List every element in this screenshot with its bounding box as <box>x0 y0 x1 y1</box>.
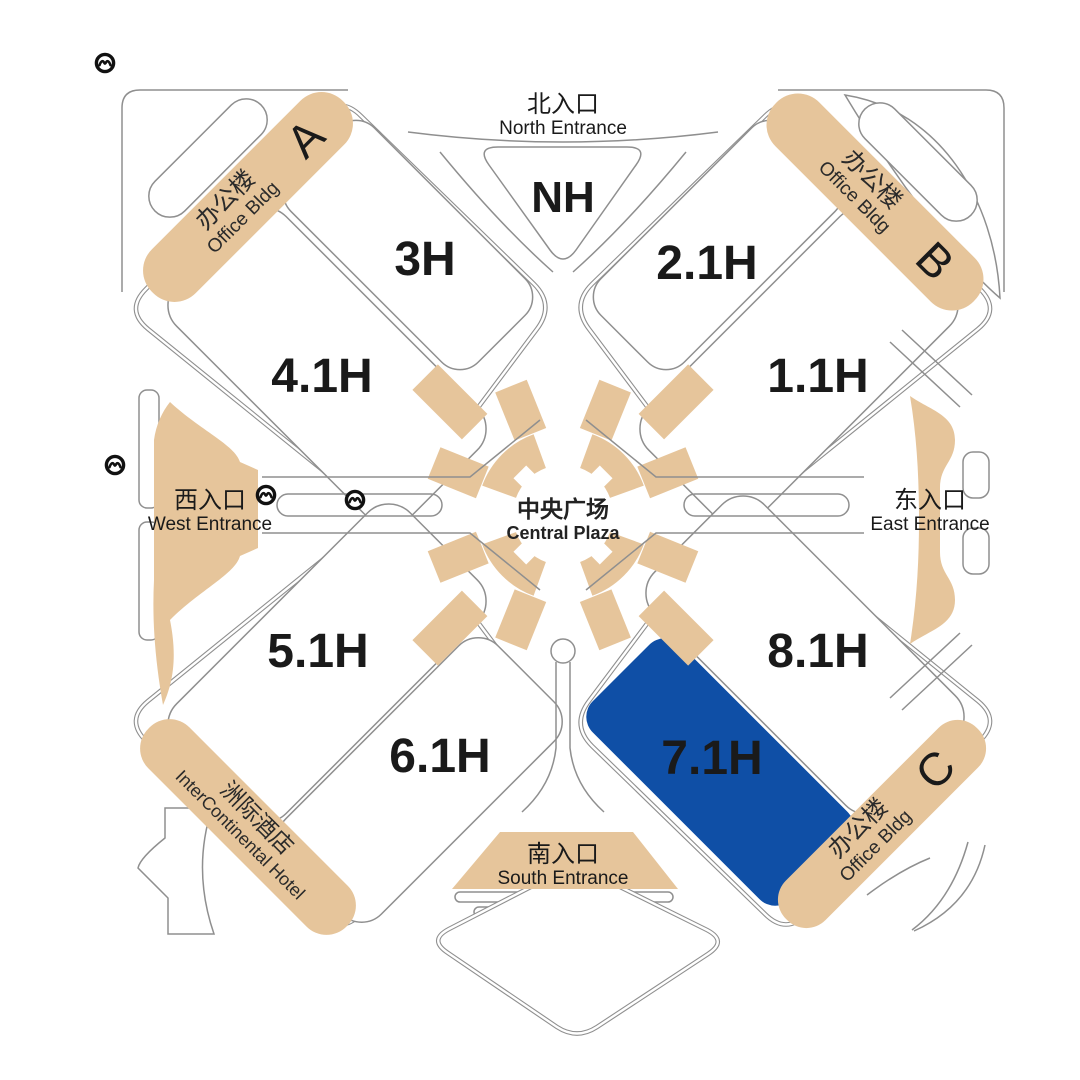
metro-icon <box>346 491 363 508</box>
south-entrance-label-en: South Entrance <box>498 868 629 889</box>
south-entrance-label-zh: 南入口 <box>527 841 599 868</box>
hall-51h-label: 5.1H <box>267 625 368 678</box>
hall-71h-label: 7.1H <box>661 732 762 785</box>
venue-map: 办公楼 Office Bldg A 办公楼 Office Bldg B 洲际酒店… <box>0 0 1080 1080</box>
southwest-corner-arrow <box>138 808 214 934</box>
hall-11h-label: 1.1H <box>767 350 868 403</box>
north-entrance-label-zh: 北入口 <box>527 91 599 118</box>
hall-3h-label: 3H <box>394 233 455 286</box>
south-diamond-building <box>438 870 718 1034</box>
west-entrance-label-en: West Entrance <box>148 514 272 535</box>
hall-41h-label: 4.1H <box>271 350 372 403</box>
metro-icon <box>96 54 113 71</box>
north-entrance-label-en: North Entrance <box>499 118 627 139</box>
west-entrance-label-zh: 西入口 <box>174 487 246 514</box>
east-entrance-label-zh: 东入口 <box>894 487 966 514</box>
east-entrance-label-en: East Entrance <box>870 514 989 535</box>
metro-icon <box>106 456 123 473</box>
central-plaza-label-zh: 中央广场 <box>517 496 609 522</box>
hall-21h-label: 2.1H <box>656 237 757 290</box>
hall-81h-label: 8.1H <box>767 625 868 678</box>
hall-61h-label: 6.1H <box>389 730 490 783</box>
metro-icon <box>257 486 274 503</box>
central-plaza-label-en: Central Plaza <box>506 523 620 543</box>
hall-nh-label: NH <box>531 173 595 222</box>
